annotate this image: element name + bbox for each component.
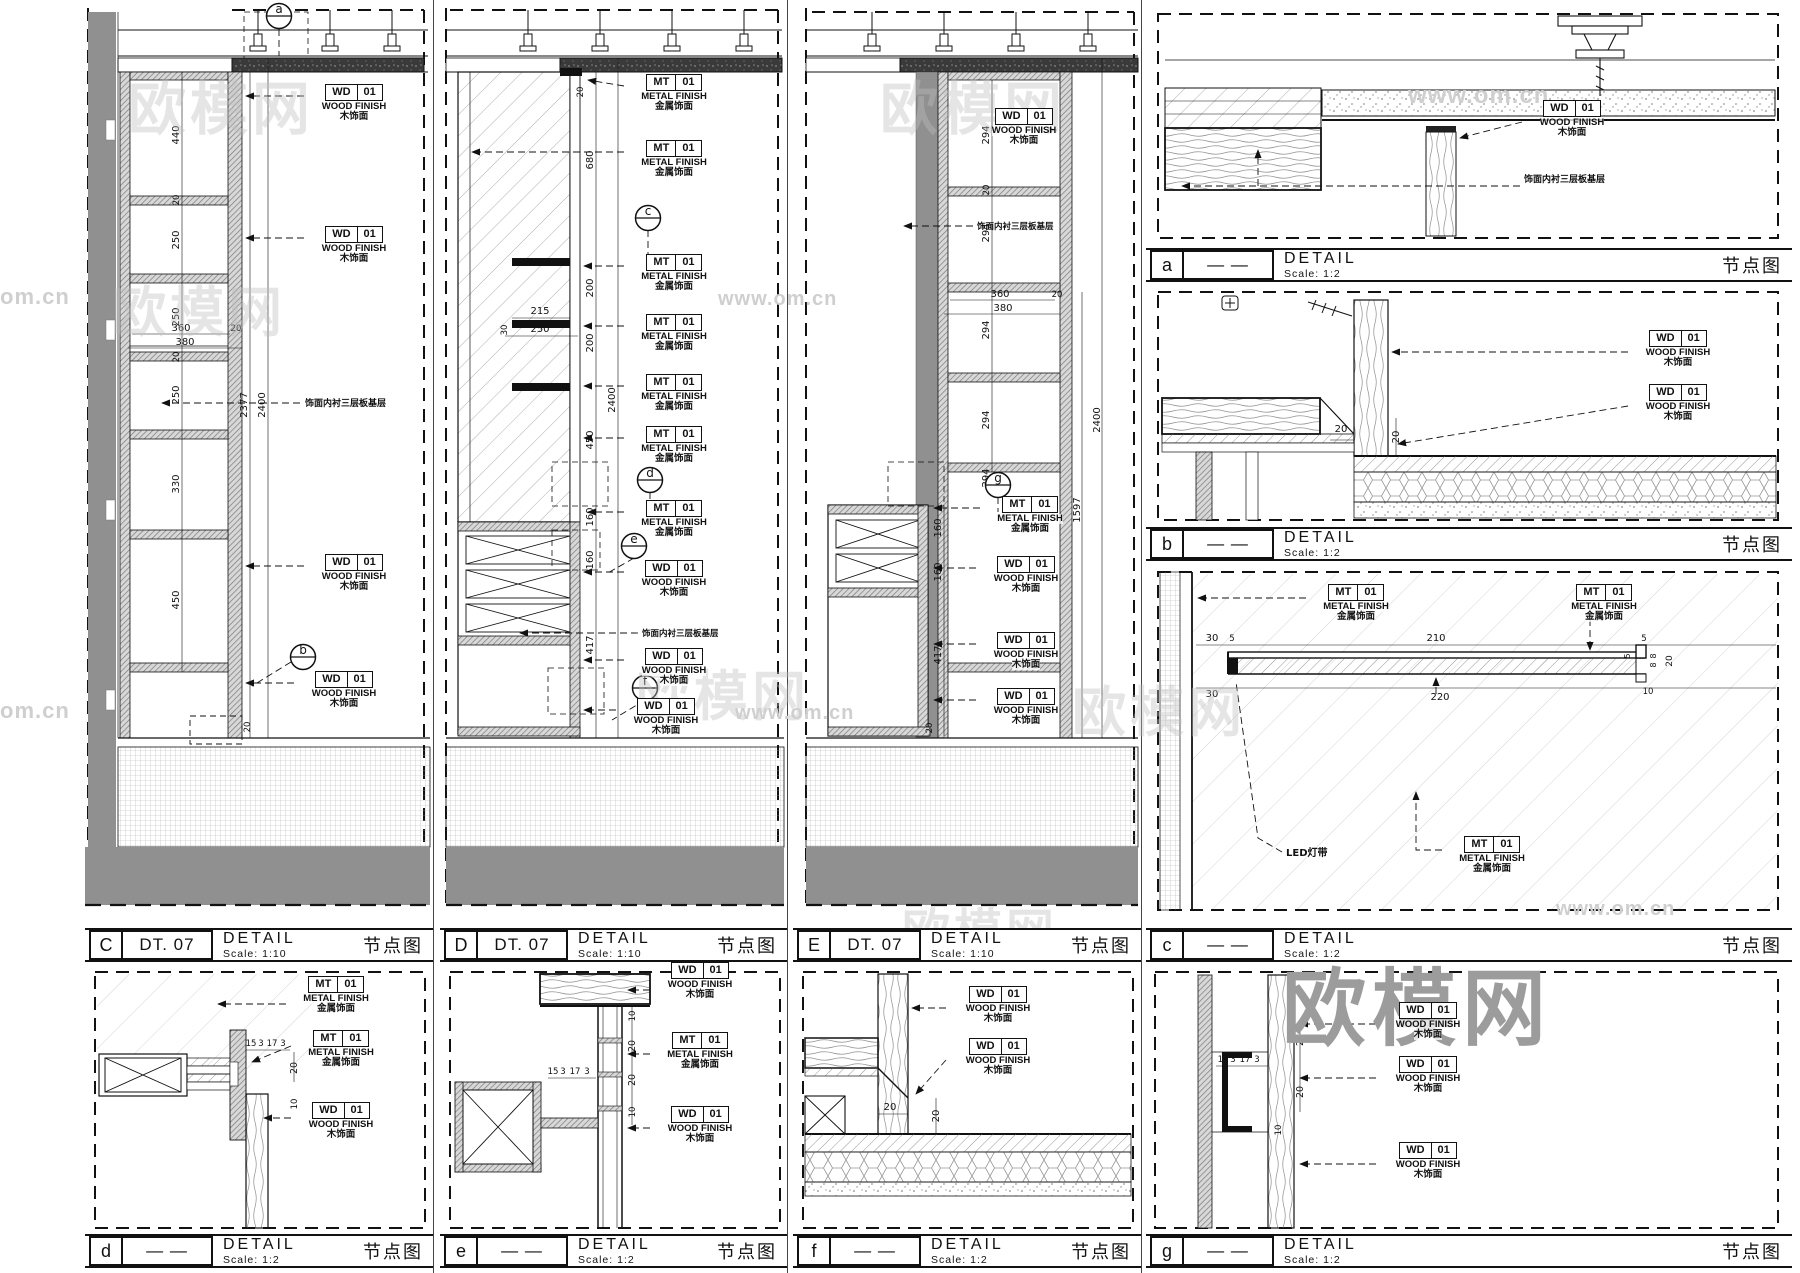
dimension-text: 294 [981, 410, 992, 429]
dimension-text: 17 [570, 1067, 581, 1077]
finish-number: 01 [676, 427, 700, 442]
finish-tag-box: MT01 [646, 426, 701, 443]
finish-code: WD [998, 689, 1029, 704]
dimension-text: 440 [171, 125, 182, 144]
title-code: — — [478, 1238, 566, 1264]
finish-tag-mt: MT01METAL FINISH金属饰面 [626, 314, 722, 352]
finish-tag-wd: WD01WOOD FINISH木饰面 [626, 560, 722, 598]
title-name: DETAIL [578, 930, 651, 948]
dimension-text: 8 [1649, 653, 1658, 658]
panel-E-drawing [806, 8, 1138, 906]
title-name: DETAIL [578, 1236, 651, 1254]
finish-label-cn: 金属饰面 [655, 342, 693, 352]
finish-code: MT [647, 375, 676, 390]
title-cn: 节点图 [1071, 932, 1131, 958]
finish-tag-wd: WD01WOOD FINISH木饰面 [293, 1102, 389, 1140]
finish-number: 01 [1030, 633, 1054, 648]
finish-number: 01 [676, 255, 700, 270]
titlebar-b: b— — DETAILScale: 1:2 节点图 [1146, 527, 1792, 561]
dimension-text: 10 [628, 1011, 638, 1022]
dimension-text: 17 [267, 1039, 278, 1049]
title-letter: b [1152, 531, 1184, 557]
dimension-text: 20 [1052, 290, 1063, 300]
finish-number: 01 [1030, 557, 1054, 572]
finish-tag-wd: WD01WOOD FINISH木饰面 [1380, 1056, 1476, 1094]
finish-number: 01 [1432, 1057, 1456, 1072]
dimension-text: 30 [500, 325, 510, 336]
title-code: — — [1184, 1238, 1272, 1264]
annotation-note: LED灯带 [1286, 846, 1328, 859]
finish-label-cn: 金属饰面 [681, 1060, 719, 1070]
finish-code: MT [647, 255, 676, 270]
finish-tag-box: WD01 [1399, 1142, 1457, 1159]
panel-D-drawing [446, 8, 784, 906]
finish-label-cn: 木饰面 [1664, 412, 1693, 422]
titlebar-g: g— — DETAILScale: 1:2 节点图 [1146, 1234, 1792, 1268]
title-cn: 节点图 [1722, 932, 1782, 958]
finish-code: WD [970, 987, 1001, 1002]
dimension-text: 20 [243, 722, 253, 733]
finish-number: 01 [345, 1103, 369, 1118]
title-scale: Scale: 1:10 [223, 948, 296, 960]
title-scale: Scale: 1:10 [931, 948, 1004, 960]
bubble-letter: g [994, 471, 1002, 485]
title-letter: C [91, 932, 123, 958]
finish-label-cn: 木饰面 [1414, 1170, 1443, 1180]
finish-code: WD [998, 633, 1029, 648]
dimension-text: 10 [1274, 1125, 1284, 1136]
detail-bubble: a [267, 2, 292, 29]
dimension-text: 160 [933, 562, 944, 581]
finish-number: 01 [1028, 109, 1052, 124]
dimension-text: 210 [1426, 633, 1445, 644]
dimension-text: 680 [585, 150, 596, 169]
finish-tag-box: WD01 [1543, 100, 1601, 117]
detail-bubble: c [636, 204, 661, 231]
dimension-text: 380 [175, 337, 194, 348]
title-scale: Scale: 1:2 [223, 1254, 296, 1266]
finish-tag-box: MT01 [646, 314, 701, 331]
dimension-text: 5 [1641, 634, 1646, 644]
finish-label-cn: 木饰面 [1414, 1030, 1443, 1040]
finish-code: MT [1465, 837, 1494, 852]
dimension-text: 20 [172, 352, 182, 363]
finish-number: 01 [704, 963, 728, 978]
finish-number: 01 [338, 977, 362, 992]
annotation-note: 饰面内衬三层板基层 [1523, 173, 1605, 185]
panel-a-drawing [1158, 14, 1778, 238]
dimension-text: 20 [1295, 1034, 1306, 1046]
finish-tag-box: WD01 [997, 556, 1055, 573]
dimension-text: 20 [576, 87, 586, 98]
dimension-text: 417 [585, 635, 596, 654]
finish-tag-mt: MT01METAL FINISH金属饰面 [293, 1030, 389, 1068]
dimension-text: 20 [172, 195, 182, 206]
title-code: DT. 07 [123, 932, 211, 958]
title-cn: 节点图 [717, 1238, 777, 1264]
finish-code: WD [1544, 101, 1575, 116]
finish-tag-wd: WD01WOOD FINISH木饰面 [950, 986, 1046, 1024]
annotation-note: 饰面内衬三层板基层 [642, 628, 719, 639]
finish-label-cn: 木饰面 [1012, 584, 1041, 594]
annotation-note: 饰面内衬三层板基层 [304, 397, 386, 409]
finish-tag-wd: WD01WOOD FINISH木饰面 [950, 1038, 1046, 1076]
dimension-text: 10 [628, 1107, 638, 1118]
finish-number: 01 [676, 315, 700, 330]
finish-number: 01 [1432, 1003, 1456, 1018]
finish-tag-mt: MT01METAL FINISH金属饰面 [652, 1032, 748, 1070]
finish-label-cn: 金属饰面 [655, 168, 693, 178]
dimension-text: 250 [171, 230, 182, 249]
bubble-letter: b [299, 643, 307, 657]
dimension-text: 160 [585, 550, 596, 569]
finish-number: 01 [676, 75, 700, 90]
finish-label-cn: 金属饰面 [655, 402, 693, 412]
finish-code: MT [1577, 585, 1606, 600]
dimension-text: 20 [627, 1040, 638, 1052]
finish-label-cn: 金属饰面 [1011, 524, 1049, 534]
finish-tag-mt: MT01METAL FINISH金属饰面 [626, 426, 722, 464]
finish-number: 01 [678, 649, 702, 664]
finish-tag-box: WD01 [997, 632, 1055, 649]
finish-tag-wd: WD01WOOD FINISH木饰面 [1630, 384, 1726, 422]
dimension-text: 20 [982, 185, 992, 196]
finish-code: WD [1400, 1057, 1431, 1072]
finish-label-cn: 木饰面 [1012, 660, 1041, 670]
title-code: — — [831, 1238, 919, 1264]
finish-tag-mt: MT01METAL FINISH金属饰面 [982, 496, 1078, 534]
finish-code: MT [673, 1033, 702, 1048]
bubble-letter: a [275, 2, 282, 16]
finish-tag-wd: WD01WOOD FINISH木饰面 [652, 1106, 748, 1144]
finish-number: 01 [1494, 837, 1518, 852]
bubble-letter: d [646, 466, 654, 480]
finish-tag-mt: MT01METAL FINISH金属饰面 [626, 74, 722, 112]
finish-label-cn: 金属饰面 [655, 454, 693, 464]
detail-bubble: b [291, 643, 316, 670]
finish-code: WD [1400, 1143, 1431, 1158]
finish-code: MT [314, 1031, 343, 1046]
finish-label-cn: 木饰面 [1664, 358, 1693, 368]
finish-tag-wd: WD01WOOD FINISH木饰面 [618, 698, 714, 736]
title-cn: 节点图 [1722, 531, 1782, 557]
finish-tag-box: MT01 [313, 1030, 368, 1047]
dimension-text: 294 [981, 320, 992, 339]
finish-label-cn: 木饰面 [1012, 716, 1041, 726]
title-letter: e [446, 1238, 478, 1264]
dimension-text: 5 [1623, 653, 1632, 658]
title-cn: 节点图 [363, 932, 423, 958]
finish-code: MT [647, 315, 676, 330]
finish-number: 01 [348, 672, 372, 687]
finish-number: 01 [1030, 689, 1054, 704]
titlebar-D: DDT. 07 DETAILScale: 1:10 节点图 [440, 928, 787, 962]
title-code: — — [1184, 932, 1272, 958]
finish-label-cn: 金属饰面 [317, 1004, 355, 1014]
finish-label-cn: 金属饰面 [1473, 864, 1511, 874]
finish-label-cn: 金属饰面 [1337, 612, 1375, 622]
dimension-text: 250 [171, 385, 182, 404]
finish-tag-box: MT01 [1576, 584, 1631, 601]
finish-tag-box: WD01 [997, 688, 1055, 705]
finish-tag-wd: WD01WOOD FINISH木饰面 [652, 962, 748, 1000]
finish-tag-wd: WD01WOOD FINISH木饰面 [1380, 1002, 1476, 1040]
finish-code: WD [316, 672, 347, 687]
dimension-text: 10 [1643, 687, 1654, 697]
finish-label-cn: 木饰面 [660, 676, 689, 686]
finish-tag-wd: WD01WOOD FINISH木饰面 [306, 84, 402, 122]
finish-tag-box: WD01 [315, 671, 373, 688]
finish-label-cn: 木饰面 [660, 588, 689, 598]
finish-tag-box: MT01 [646, 500, 701, 517]
title-name: DETAIL [223, 1236, 296, 1254]
finish-tag-wd: WD01WOOD FINISH木饰面 [978, 632, 1074, 670]
finish-code: WD [646, 561, 677, 576]
finish-number: 01 [676, 141, 700, 156]
titlebar-f: f— — DETAILScale: 1:2 节点图 [793, 1234, 1141, 1268]
finish-code: MT [647, 75, 676, 90]
titlebar-e: e— — DETAILScale: 1:2 节点图 [440, 1234, 787, 1268]
finish-tag-box: WD01 [969, 1038, 1027, 1055]
title-letter: E [799, 932, 831, 958]
titlebar-c: c— — DETAILScale: 1:2 节点图 [1146, 928, 1792, 962]
finish-tag-mt: MT01METAL FINISH金属饰面 [1556, 584, 1652, 622]
finish-code: WD [672, 963, 703, 978]
finish-tag-mt: MT01METAL FINISH金属饰面 [626, 500, 722, 538]
finish-number: 01 [358, 85, 382, 100]
finish-label-cn: 木饰面 [330, 699, 359, 709]
title-cn: 节点图 [1071, 1238, 1131, 1264]
finish-tag-mt: MT01METAL FINISH金属饰面 [1444, 836, 1540, 874]
finish-code: WD [646, 649, 677, 664]
titlebar-d: d— — DETAILScale: 1:2 节点图 [85, 1234, 433, 1268]
finish-code: WD [1650, 331, 1681, 346]
panel-e-drawing [450, 972, 780, 1228]
dimension-text: 20 [884, 1102, 897, 1113]
finish-label-cn: 木饰面 [984, 1014, 1013, 1024]
dimension-text: 3 [1230, 1055, 1235, 1065]
titlebar-a: a— — DETAILScale: 1:2 节点图 [1146, 248, 1792, 282]
finish-number: 01 [1682, 331, 1706, 346]
drawing-linework: 4402502502503304502020360380202377240020… [0, 0, 1800, 1273]
title-letter: g [1152, 1238, 1184, 1264]
finish-code: MT [1003, 497, 1032, 512]
finish-label-cn: 木饰面 [340, 254, 369, 264]
dimension-text: 20 [1665, 655, 1675, 667]
finish-tag-wd: WD01WOOD FINISH木饰面 [976, 108, 1072, 146]
dimension-text: 8 [1649, 662, 1658, 667]
finish-tag-wd: WD01WOOD FINISH木饰面 [1524, 100, 1620, 138]
detail-bubble: d [638, 466, 663, 493]
finish-tag-box: MT01 [646, 254, 701, 271]
dimension-text: 2400 [1092, 407, 1103, 432]
finish-number: 01 [1682, 385, 1706, 400]
finish-number: 01 [1002, 1039, 1026, 1054]
title-letter: d [91, 1238, 123, 1264]
finish-tag-box: WD01 [645, 560, 703, 577]
finish-number: 01 [358, 227, 382, 242]
title-code: — — [123, 1238, 211, 1264]
finish-tag-box: WD01 [995, 108, 1053, 125]
finish-label-cn: 金属饰面 [655, 102, 693, 112]
finish-label-cn: 金属饰面 [1585, 612, 1623, 622]
finish-tag-box: WD01 [1399, 1056, 1457, 1073]
finish-code: WD [326, 85, 357, 100]
finish-tag-box: WD01 [969, 986, 1027, 1003]
title-cn: 节点图 [1722, 252, 1782, 278]
finish-number: 01 [702, 1033, 726, 1048]
finish-code: MT [647, 427, 676, 442]
finish-label-cn: 金属饰面 [322, 1058, 360, 1068]
dimension-text: 3 [280, 1039, 285, 1049]
finish-tag-box: MT01 [646, 374, 701, 391]
title-name: DETAIL [1284, 250, 1357, 268]
finish-tag-box: MT01 [672, 1032, 727, 1049]
finish-number: 01 [1358, 585, 1382, 600]
finish-label-cn: 金属饰面 [655, 282, 693, 292]
finish-tag-box: MT01 [646, 140, 701, 157]
finish-tag-wd: WD01WOOD FINISH木饰面 [1380, 1142, 1476, 1180]
dimension-text: 20 [1295, 1086, 1306, 1098]
finish-tag-mt: MT01METAL FINISH金属饰面 [626, 254, 722, 292]
finish-code: MT [647, 501, 676, 516]
dimension-text: 160 [933, 518, 944, 537]
finish-label-cn: 金属饰面 [655, 528, 693, 538]
dimension-text: 30 [1206, 689, 1219, 700]
dimension-text: 20 [231, 324, 242, 334]
finish-code: WD [998, 557, 1029, 572]
dimension-text: 17 [1240, 1055, 1251, 1065]
title-scale: Scale: 1:2 [1284, 948, 1357, 960]
finish-tag-wd: WD01WOOD FINISH木饰面 [626, 648, 722, 686]
finish-number: 01 [358, 555, 382, 570]
finish-tag-wd: WD01WOOD FINISH木饰面 [306, 554, 402, 592]
dimension-text: 3 [584, 1067, 589, 1077]
cad-sheet: 4402502502503304502020360380202377240020… [0, 0, 1800, 1273]
dimension-text: 20 [1391, 431, 1402, 444]
dimension-text: 417 [933, 645, 944, 664]
finish-code: WD [672, 1107, 703, 1122]
title-code: DT. 07 [478, 932, 566, 958]
dimension-text: 360 [171, 323, 190, 334]
finish-number: 01 [676, 501, 700, 516]
finish-tag-box: MT01 [646, 74, 701, 91]
dimension-text: 30 [1206, 633, 1219, 644]
finish-number: 01 [670, 699, 694, 714]
dimension-text: 215 [530, 306, 549, 317]
finish-label-cn: 木饰面 [340, 582, 369, 592]
finish-tag-box: WD01 [325, 554, 383, 571]
finish-tag-box: WD01 [1649, 384, 1707, 401]
finish-label-cn: 木饰面 [340, 112, 369, 122]
finish-code: MT [309, 977, 338, 992]
title-scale: Scale: 1:2 [578, 1254, 651, 1266]
title-cn: 节点图 [717, 932, 777, 958]
title-name: DETAIL [1284, 529, 1357, 547]
title-letter: D [446, 932, 478, 958]
titlebar-E: EDT. 07 DETAILScale: 1:10 节点图 [793, 928, 1141, 962]
finish-code: WD [313, 1103, 344, 1118]
finish-code: WD [326, 555, 357, 570]
dimension-text: 15 [246, 1039, 257, 1049]
dimension-text: 2400 [257, 392, 268, 417]
finish-tag-wd: WD01WOOD FINISH木饰面 [978, 556, 1074, 594]
annotation-note: 饰面内衬三层板基层 [977, 221, 1054, 232]
finish-code: MT [1329, 585, 1358, 600]
finish-number: 01 [343, 1031, 367, 1046]
title-name: DETAIL [1284, 930, 1357, 948]
finish-tag-box: WD01 [312, 1102, 370, 1119]
finish-tag-box: WD01 [645, 648, 703, 665]
title-letter: c [1152, 932, 1184, 958]
finish-tag-wd: WD01WOOD FINISH木饰面 [306, 226, 402, 264]
dimension-text: 20 [1335, 424, 1348, 435]
dimension-text: 250 [530, 324, 549, 335]
finish-tag-mt: MT01METAL FINISH金属饰面 [288, 976, 384, 1014]
bubble-letter: c [645, 204, 652, 218]
finish-tag-box: WD01 [1649, 330, 1707, 347]
title-cn: 节点图 [1722, 1238, 1782, 1264]
finish-tag-wd: WD01WOOD FINISH木饰面 [978, 688, 1074, 726]
panel-C-drawing [85, 8, 430, 906]
titlebar-C: CDT. 07 DETAILScale: 1:10 节点图 [85, 928, 433, 962]
title-cn: 节点图 [363, 1238, 423, 1264]
finish-number: 01 [678, 561, 702, 576]
dimension-text: 2377 [239, 392, 250, 417]
dimension-text: 380 [993, 303, 1012, 314]
finish-label-cn: 木饰面 [1010, 136, 1039, 146]
finish-label-cn: 木饰面 [686, 1134, 715, 1144]
title-name: DETAIL [931, 930, 1004, 948]
finish-code: WD [1400, 1003, 1431, 1018]
dimension-text: 15 [1218, 1055, 1229, 1065]
dimension-text: 3 [258, 1039, 263, 1049]
finish-tag-box: MT01 [1328, 584, 1383, 601]
title-scale: Scale: 1:2 [1284, 547, 1357, 559]
dimension-text: 3 [560, 1067, 565, 1077]
dimension-text: 160 [585, 507, 596, 526]
finish-tag-box: WD01 [325, 226, 383, 243]
finish-code: WD [996, 109, 1027, 124]
finish-tag-box: MT01 [308, 976, 363, 993]
finish-number: 01 [676, 375, 700, 390]
title-code: — — [1184, 252, 1272, 278]
title-code: — — [1184, 531, 1272, 557]
finish-code: WD [638, 699, 669, 714]
finish-number: 01 [1576, 101, 1600, 116]
finish-label-cn: 木饰面 [984, 1066, 1013, 1076]
finish-label-cn: 木饰面 [652, 726, 681, 736]
finish-tag-box: WD01 [325, 84, 383, 101]
finish-number: 01 [1032, 497, 1056, 512]
dimension-text: 15 [548, 1067, 559, 1077]
dimension-text: 2400 [607, 387, 618, 412]
title-scale: Scale: 1:2 [1284, 1254, 1357, 1266]
finish-number: 01 [1432, 1143, 1456, 1158]
title-letter: f [799, 1238, 831, 1264]
finish-label-cn: 木饰面 [327, 1130, 356, 1140]
finish-code: WD [970, 1039, 1001, 1054]
dimension-text: 3 [1254, 1055, 1259, 1065]
finish-tag-mt: MT01METAL FINISH金属饰面 [626, 374, 722, 412]
dimension-text: 450 [585, 430, 596, 449]
finish-code: WD [1650, 385, 1681, 400]
finish-tag-box: MT01 [1464, 836, 1519, 853]
dimension-text: 360 [990, 289, 1009, 300]
dimension-text: 5 [1229, 634, 1234, 644]
finish-tag-box: WD01 [671, 962, 729, 979]
finish-number: 01 [1002, 987, 1026, 1002]
